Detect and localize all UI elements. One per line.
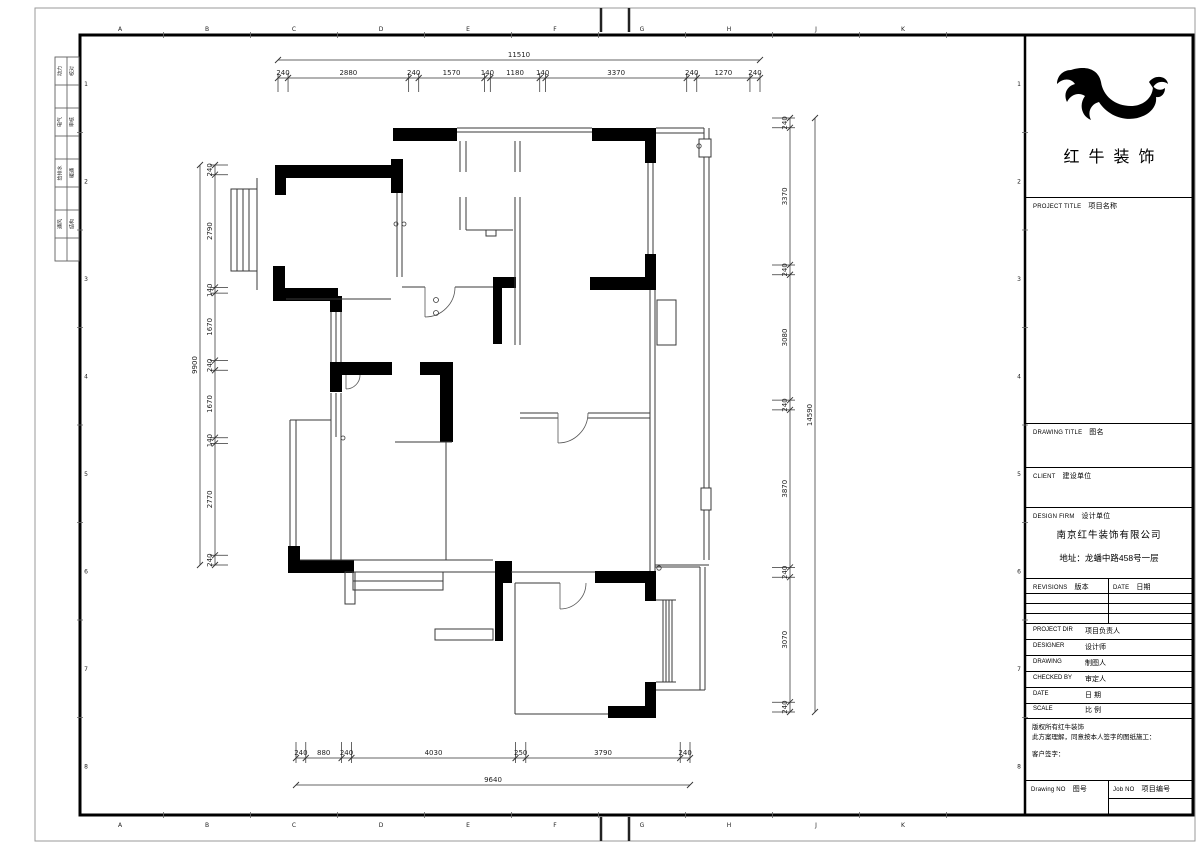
grid-number: 6 xyxy=(84,568,88,575)
grid-letter: F xyxy=(553,822,557,829)
discipline-stamp-grid: 动力校对电气审核给排水暖通通风结构 xyxy=(55,57,79,261)
stamp-cell xyxy=(55,136,67,159)
divider xyxy=(1025,467,1193,468)
dim-label: 1670 xyxy=(206,318,214,336)
dim-label: 3080 xyxy=(781,329,789,347)
grid-letter: K xyxy=(901,26,906,33)
logo-text: 红牛装饰 xyxy=(1025,143,1193,167)
stamp-label: 审核 xyxy=(69,117,76,127)
stamp-label: 通风 xyxy=(57,219,64,229)
drawing-sheet: 动力校对电气审核给排水暖通通风结构 ABCDEFGHJK ABCDEFGHJK … xyxy=(0,0,1200,848)
dim-total: 11510 xyxy=(508,51,530,59)
dim-label: 240 xyxy=(781,116,789,129)
copyright-note: 版权所有红牛装饰 此方案理解，同意按本人签字的图纸施工： 客户签字： xyxy=(1032,723,1188,760)
divider xyxy=(1025,578,1193,579)
divider xyxy=(1025,718,1193,719)
firm-address: 地址：龙蟠中路458号一层 xyxy=(1025,552,1193,564)
dim-label: 1570 xyxy=(443,69,461,77)
stamp-label: 校对 xyxy=(69,66,76,76)
divider xyxy=(1025,703,1193,704)
plan-thin-walls xyxy=(231,128,711,714)
divider xyxy=(1025,603,1193,604)
dimension-chain-left: 24027901401670240167014027702409900 xyxy=(191,162,228,568)
stamp-cell xyxy=(55,85,67,108)
dim-label: 240 xyxy=(781,700,789,713)
dim-label: 140 xyxy=(481,69,494,77)
plan-symbols xyxy=(341,144,701,570)
stamp-cell xyxy=(55,187,67,210)
grid-number: 4 xyxy=(84,373,88,380)
dim-label: 140 xyxy=(206,284,214,297)
grid-number: 7 xyxy=(1017,666,1021,673)
revisions-header: REVISIONS版本 xyxy=(1033,582,1089,592)
grid-letter: B xyxy=(205,822,209,829)
divider xyxy=(1025,639,1193,640)
project-dir-row: PROJECT DIR项目负责人 xyxy=(1033,627,1073,633)
floor-plan xyxy=(231,128,711,718)
grid-letter: E xyxy=(466,822,470,829)
dimension-chain-right: 240337024030802403870240307024014590 xyxy=(772,115,818,715)
checked-by-row: CHECKED BY审定人 xyxy=(1033,675,1072,681)
dim-total: 14590 xyxy=(806,404,814,426)
divider xyxy=(1108,798,1193,799)
stamp-cell xyxy=(67,85,79,108)
dim-label: 140 xyxy=(536,69,549,77)
drawing-title-label: DRAWING TITLE图名 xyxy=(1033,427,1104,437)
grid-letter: E xyxy=(466,26,470,33)
grid-number: 6 xyxy=(1017,568,1021,575)
grid-letter: D xyxy=(379,26,384,33)
dim-label: 240 xyxy=(685,69,698,77)
bull-logo-icon xyxy=(1049,60,1169,140)
dim-label: 1670 xyxy=(206,395,214,413)
dim-label: 3370 xyxy=(607,69,625,77)
divider xyxy=(1025,197,1193,198)
dim-label: 240 xyxy=(340,749,353,757)
grid-number: 7 xyxy=(84,666,88,673)
designer-row: DESIGNER设计师 xyxy=(1033,643,1064,649)
title-block: 红牛装饰 PROJECT TITLE项目名称 DRAWING TITLE图名 C… xyxy=(1025,35,1193,815)
dim-total: 9900 xyxy=(191,356,199,374)
dim-label: 250 xyxy=(514,749,527,757)
grid-number: 2 xyxy=(1017,178,1021,185)
project-title-label: PROJECT TITLE项目名称 xyxy=(1033,201,1117,211)
stamp-cell xyxy=(55,238,67,261)
dim-label: 240 xyxy=(276,69,289,77)
date-row: DATE日 期 xyxy=(1033,691,1049,697)
dim-label: 240 xyxy=(678,749,691,757)
dim-label: 240 xyxy=(294,749,307,757)
client-label: CLIENT建设单位 xyxy=(1033,471,1091,481)
grid-letter: H xyxy=(727,822,732,829)
dimension-chain-bottom: 240880240403025037902409640 xyxy=(293,742,693,788)
dim-label: 2790 xyxy=(206,222,214,240)
grid-letter: C xyxy=(292,26,296,33)
grid-letter: A xyxy=(118,822,123,829)
dim-label: 2880 xyxy=(339,69,357,77)
grid-letter: H xyxy=(727,26,732,33)
grid-letter: K xyxy=(901,822,906,829)
divider xyxy=(1025,623,1193,624)
stamp-cell xyxy=(67,136,79,159)
revision-col-divider xyxy=(1108,578,1109,623)
divider xyxy=(1025,687,1193,688)
grid-letter: J xyxy=(814,26,817,33)
grid-number: 5 xyxy=(1017,471,1021,478)
dim-label: 3070 xyxy=(781,631,789,649)
stamp-label: 电气 xyxy=(57,117,64,127)
divider xyxy=(1025,613,1193,614)
dim-label: 240 xyxy=(748,69,761,77)
scale-row: SCALE比 例 xyxy=(1033,706,1053,712)
design-firm-label: DESIGN FIRM设计单位 xyxy=(1033,511,1110,521)
stamp-cell xyxy=(67,238,79,261)
dim-label: 3790 xyxy=(594,749,612,757)
divider xyxy=(1025,655,1193,656)
dim-label: 240 xyxy=(781,398,789,411)
dim-total: 9640 xyxy=(484,776,502,784)
grid-letter: D xyxy=(379,822,384,829)
grid-letter: C xyxy=(292,822,296,829)
grid-number: 2 xyxy=(84,178,88,185)
firm-name: 南京红牛装饰有限公司 xyxy=(1025,527,1193,541)
divider xyxy=(1025,780,1193,781)
date-header: DATE日期 xyxy=(1113,582,1151,592)
grid-number: 3 xyxy=(1017,276,1021,283)
stamp-label: 结构 xyxy=(69,219,76,229)
grid-letter: G xyxy=(640,26,645,33)
dim-label: 240 xyxy=(407,69,420,77)
plan-doors xyxy=(346,287,588,609)
job-no-label: Job NO项目编号 xyxy=(1113,784,1170,794)
drawing-row: DRAWING制图人 xyxy=(1033,659,1062,665)
stamp-label: 动力 xyxy=(57,66,64,76)
grid-number: 5 xyxy=(84,471,88,478)
grid-number: 1 xyxy=(84,81,88,88)
divider xyxy=(1025,671,1193,672)
grid-number: 8 xyxy=(84,763,88,770)
divider xyxy=(1025,423,1193,424)
dim-label: 2770 xyxy=(206,490,214,508)
grid-number: 8 xyxy=(1017,763,1021,770)
dim-label: 140 xyxy=(206,434,214,447)
dim-label: 240 xyxy=(206,359,214,372)
dim-label: 240 xyxy=(206,553,214,566)
divider xyxy=(1025,593,1193,594)
stamp-label: 给排水 xyxy=(57,165,64,180)
grid-letter: A xyxy=(118,26,123,33)
dim-label: 3370 xyxy=(781,187,789,205)
stamp-label: 暖通 xyxy=(69,168,76,178)
grid-letter: F xyxy=(553,26,557,33)
dim-label: 240 xyxy=(781,263,789,276)
divider xyxy=(1025,507,1193,508)
grid-letter: B xyxy=(205,26,209,33)
grid-letter: G xyxy=(640,822,645,829)
floor-plan-canvas: 动力校对电气审核给排水暖通通风结构 ABCDEFGHJK ABCDEFGHJK … xyxy=(0,0,1200,848)
grid-number: 3 xyxy=(84,276,88,283)
dim-label: 240 xyxy=(781,566,789,579)
dim-label: 4030 xyxy=(425,749,443,757)
drawing-no-label: Drawing NO图号 xyxy=(1031,784,1087,794)
grid-number: 4 xyxy=(1017,373,1021,380)
dim-label: 880 xyxy=(317,749,330,757)
stamp-cell xyxy=(67,187,79,210)
grid-number: 1 xyxy=(1017,81,1021,88)
dimension-chain-top: 2402880240157014011801403370240127024011… xyxy=(275,51,763,92)
grid-letter: J xyxy=(814,822,817,829)
dim-label: 1180 xyxy=(506,69,524,77)
dim-label: 240 xyxy=(206,163,214,176)
dim-label: 1270 xyxy=(714,69,732,77)
dim-label: 3870 xyxy=(781,480,789,498)
